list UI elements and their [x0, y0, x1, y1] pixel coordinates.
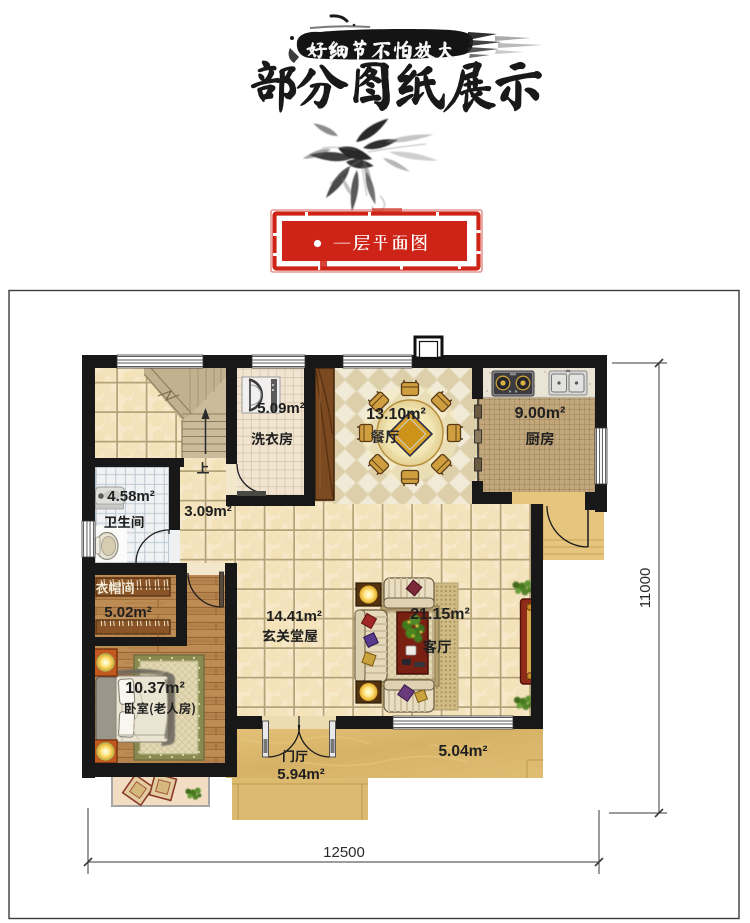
svg-text:21.15m²: 21.15m² [410, 606, 470, 623]
svg-text:14.41m²: 14.41m² [266, 608, 322, 625]
svg-text:5.94m²: 5.94m² [277, 766, 325, 783]
svg-text:12500: 12500 [323, 844, 365, 861]
svg-text:10.37m²: 10.37m² [125, 680, 185, 697]
svg-text:5.09m²: 5.09m² [257, 400, 305, 417]
svg-text:3.09m²: 3.09m² [184, 503, 232, 520]
svg-text:5.02m²: 5.02m² [104, 604, 152, 621]
svg-text:5.04m²: 5.04m² [438, 743, 487, 760]
svg-text:9.00m²: 9.00m² [515, 405, 566, 422]
svg-text:13.10m²: 13.10m² [366, 406, 426, 423]
svg-text:11000: 11000 [637, 568, 654, 609]
svg-text:4.58m²: 4.58m² [107, 488, 155, 505]
